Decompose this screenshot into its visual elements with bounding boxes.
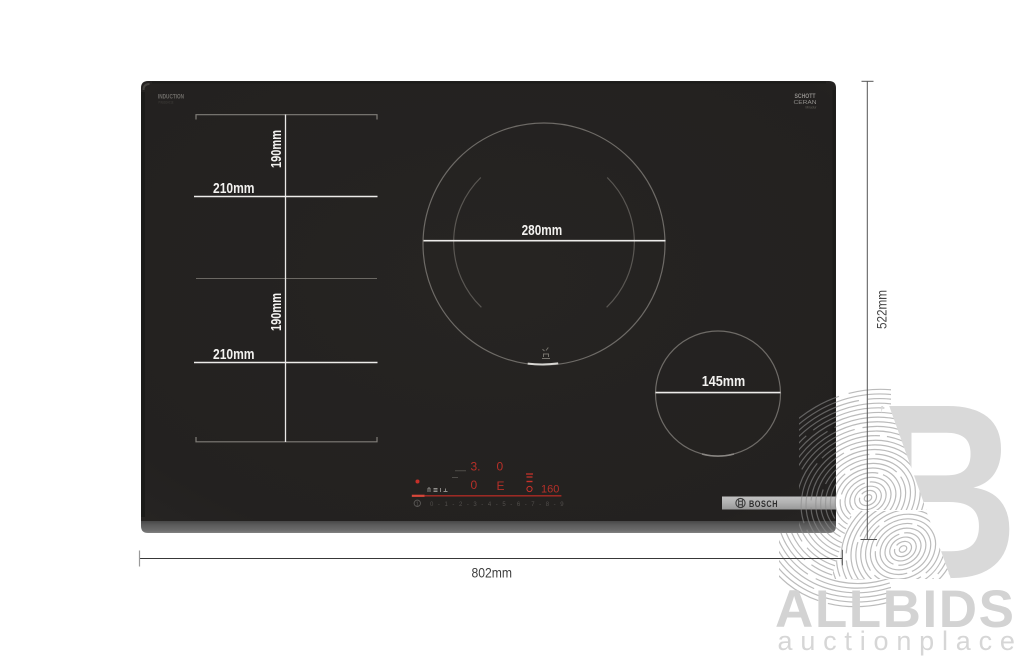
svg-text:210mm: 210mm [213,180,255,197]
svg-text:190mm: 190mm [268,130,285,168]
svg-text:210mm: 210mm [213,346,255,363]
svg-text:0: 0 [497,460,504,474]
svg-text:BOSCH: BOSCH [749,499,778,510]
svg-text:522mm: 522mm [874,290,890,329]
svg-text:E: E [497,479,505,493]
svg-text:PVE831HC1E: PVE831HC1E [159,100,174,105]
svg-text:auctionplace: auctionplace [778,626,1023,656]
svg-text:0 - 1 - 2 - 3 - 4 - 5 - 6 - 7: 0 - 1 - 2 - 3 - 4 - 5 - 6 - 7 - 8 - 9 [430,502,565,508]
svg-text:1: 1 [416,502,419,508]
svg-text:280mm: 280mm [522,222,563,239]
svg-text:145mm: 145mm [702,373,746,390]
svg-text:802mm: 802mm [472,565,513,581]
svg-text:0: 0 [471,478,478,492]
svg-text:Miradur: Miradur [806,106,818,110]
svg-text:160: 160 [541,484,559,496]
svg-text:3.: 3. [471,460,481,474]
svg-text:SCHOTT: SCHOTT [795,93,816,100]
svg-text:190mm: 190mm [268,293,285,331]
